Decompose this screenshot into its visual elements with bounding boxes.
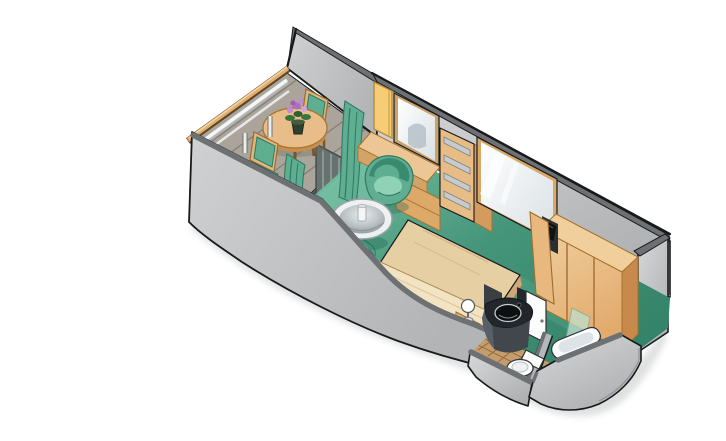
candle xyxy=(358,204,366,221)
sink xyxy=(495,305,521,322)
floorplan-canvas xyxy=(40,16,726,425)
faucet xyxy=(517,303,521,307)
stateroom-floorplan xyxy=(40,16,726,425)
headboard-light-panel xyxy=(374,82,392,138)
